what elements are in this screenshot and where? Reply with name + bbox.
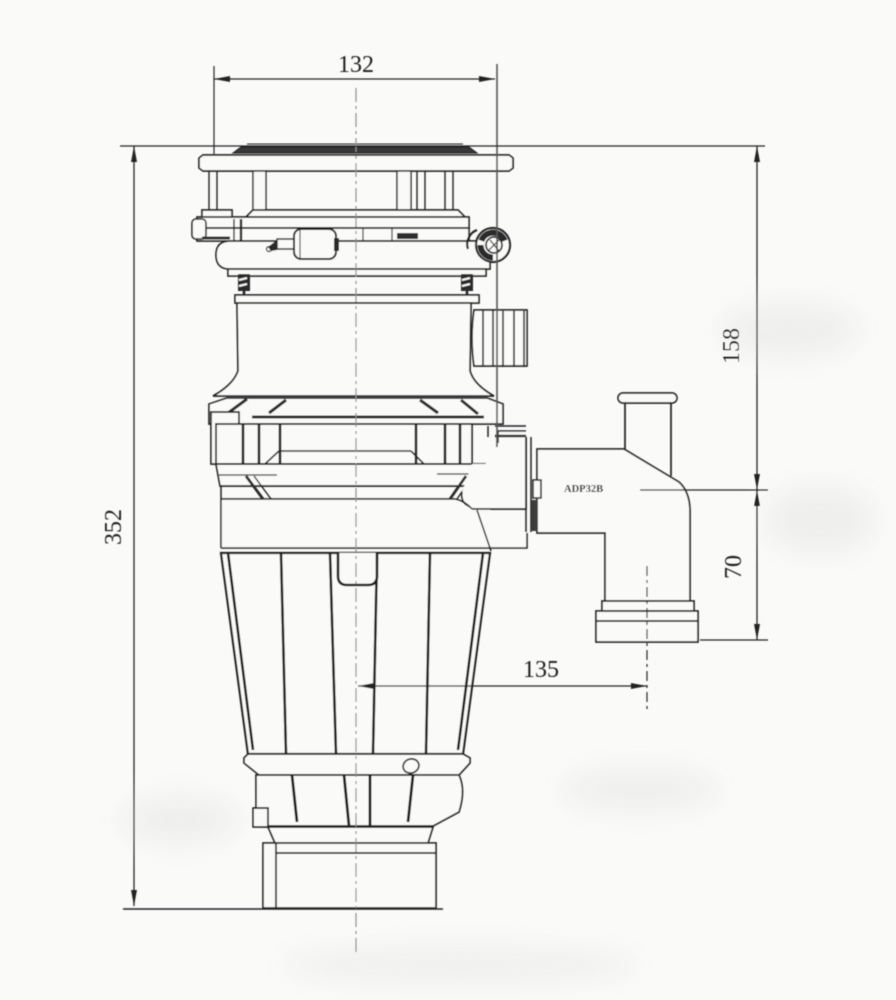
svg-text:135: 135 bbox=[523, 657, 559, 683]
svg-text:70: 70 bbox=[721, 555, 747, 579]
svg-text:352: 352 bbox=[101, 509, 127, 545]
svg-text:ADP32B: ADP32B bbox=[564, 484, 603, 495]
svg-text:158: 158 bbox=[719, 328, 745, 364]
svg-text:132: 132 bbox=[338, 52, 374, 78]
